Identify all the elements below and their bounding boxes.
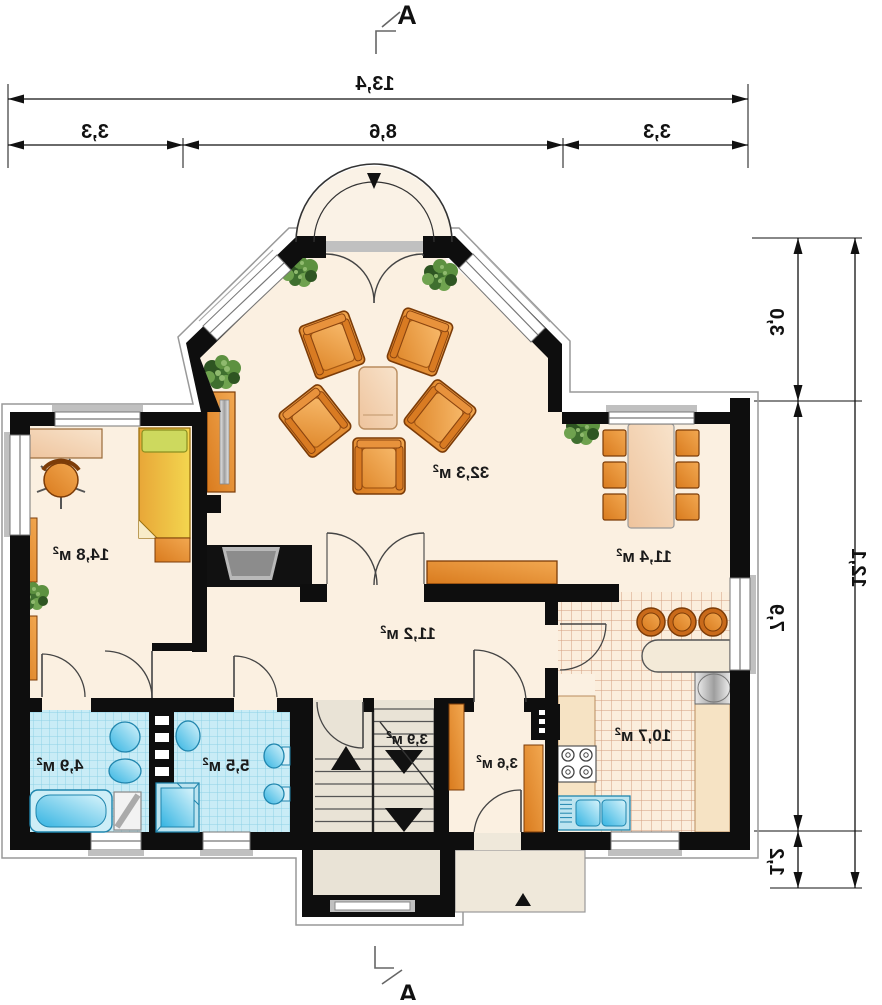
svg-text:1,2: 1,2 bbox=[765, 848, 787, 876]
svg-text:11,4 м2: 11,4 м2 bbox=[616, 547, 672, 566]
svg-text:3,3: 3,3 bbox=[81, 121, 109, 143]
svg-text:13,4: 13,4 bbox=[355, 73, 395, 95]
svg-text:3,0: 3,0 bbox=[765, 308, 787, 336]
svg-text:3,9 м2: 3,9 м2 bbox=[386, 730, 428, 748]
svg-text:A: A bbox=[398, 979, 418, 1000]
svg-text:32,3 м2: 32,3 м2 bbox=[433, 463, 490, 482]
svg-text:7,9: 7,9 bbox=[765, 604, 787, 632]
svg-text:12,1: 12,1 bbox=[847, 549, 869, 588]
svg-text:8,6: 8,6 bbox=[369, 121, 397, 143]
svg-text:3,6 м2: 3,6 м2 bbox=[476, 754, 518, 772]
svg-text:14,8 м2: 14,8 м2 bbox=[53, 545, 110, 564]
svg-text:4,9 м2: 4,9 м2 bbox=[36, 756, 83, 775]
svg-text:A: A bbox=[397, 0, 417, 30]
svg-text:11,2 м2: 11,2 м2 bbox=[380, 624, 436, 643]
svg-text:5,5 м2: 5,5 м2 bbox=[202, 756, 249, 775]
svg-text:10,7 м2: 10,7 м2 bbox=[615, 726, 672, 745]
svg-text:3,3: 3,3 bbox=[643, 121, 671, 143]
